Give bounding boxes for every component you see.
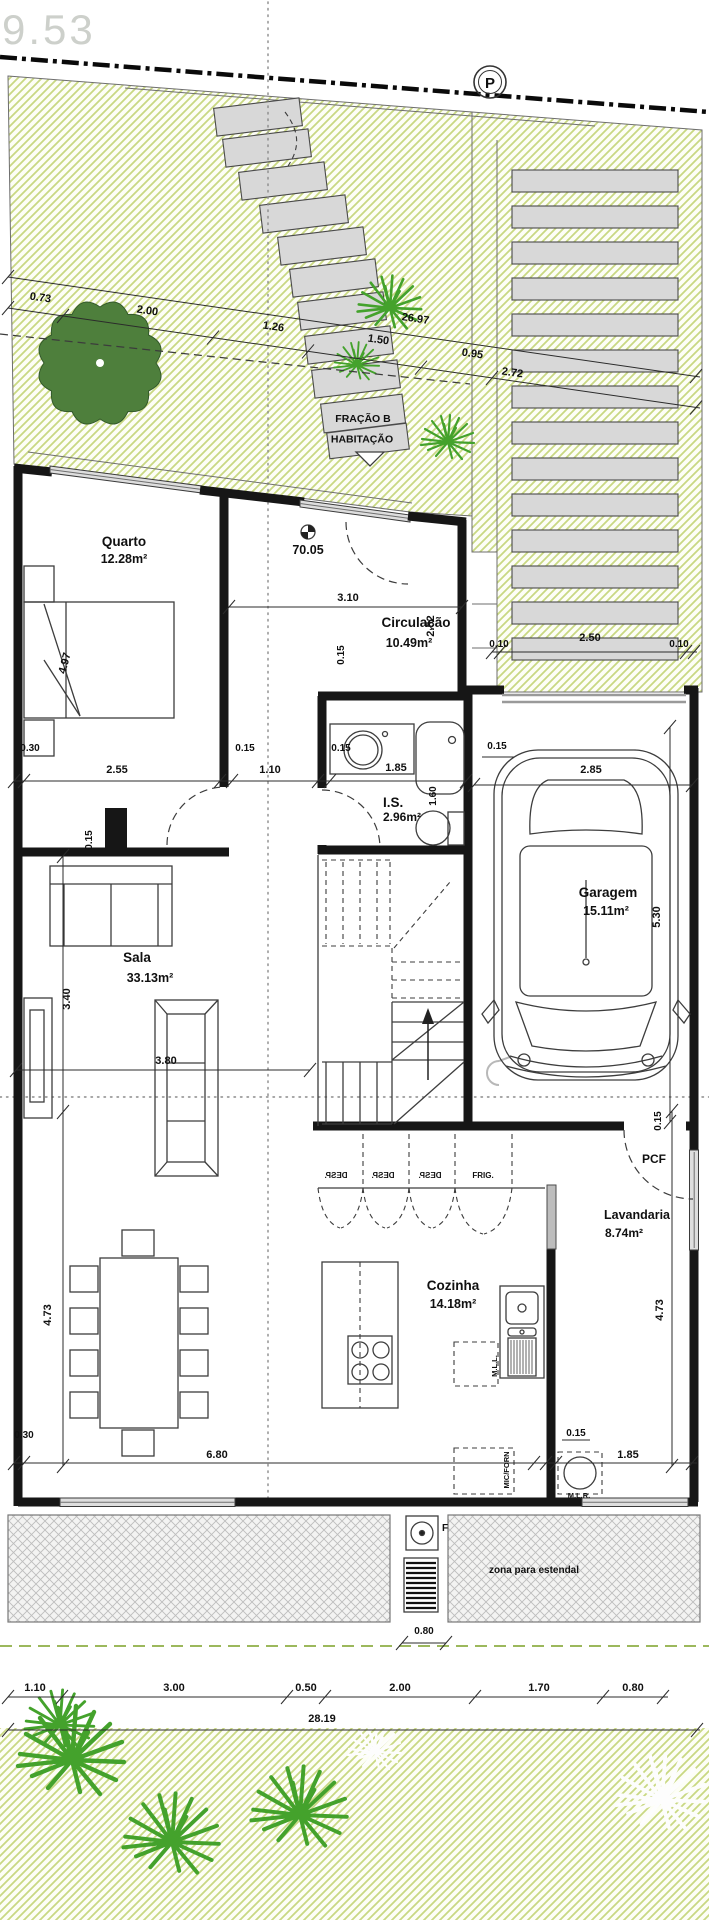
label-micforn: MIC/FORN xyxy=(502,1451,511,1488)
label-desp-1: DESP. xyxy=(325,1171,348,1180)
room-lavandaria-area: 8.74m² xyxy=(605,1226,643,1240)
chair xyxy=(70,1308,98,1334)
dim-015-garage: 0.15 xyxy=(487,741,507,752)
garden-hatch-lower xyxy=(0,1728,709,1920)
car-mirror-right xyxy=(673,1000,690,1023)
room-garagem: Garagem xyxy=(579,885,638,900)
kitchen-island xyxy=(322,1262,398,1408)
washing-machine xyxy=(564,1457,596,1489)
fraction-label: FRAÇÃO B xyxy=(335,412,391,425)
elevation-label: 9.53 xyxy=(2,6,96,53)
label-mlr: M.L.R. xyxy=(568,1491,591,1500)
room-sala-area: 33.13m² xyxy=(127,971,174,985)
dim-473-right: 4.73 xyxy=(654,1299,666,1320)
chair xyxy=(180,1392,208,1418)
dim-185b: 1.85 xyxy=(617,1449,638,1461)
dim-252: 2.52 xyxy=(425,615,437,636)
label-desp-3: DESP. xyxy=(419,1171,442,1180)
room-is: I.S. xyxy=(383,795,403,810)
dim-b110: 1.10 xyxy=(24,1682,45,1694)
garage-door xyxy=(502,695,686,702)
tree-trunk-dot xyxy=(96,359,104,367)
bathroom-fixtures xyxy=(330,722,464,845)
stair-up-arrow xyxy=(422,1008,434,1024)
dim-255: 2.55 xyxy=(106,764,127,776)
house-interior-walls xyxy=(18,496,558,1502)
chair xyxy=(122,1230,154,1256)
coffee-table xyxy=(155,1000,218,1176)
dim-310: 3.10 xyxy=(337,592,358,604)
parking-symbol: P xyxy=(474,66,506,98)
laundry-fixtures xyxy=(558,1452,602,1494)
dim-030: 0.30 xyxy=(20,743,40,754)
dim-380: 3.80 xyxy=(155,1055,176,1067)
nightstand xyxy=(24,566,54,602)
room-quarto-area: 12.28m² xyxy=(101,552,148,566)
dining-table xyxy=(100,1258,178,1428)
dim-ramp-010a: 0.10 xyxy=(489,639,509,650)
room-quarto: Quarto xyxy=(102,534,146,549)
bedroom-furniture xyxy=(24,566,174,756)
entrance-door-arc xyxy=(346,522,408,584)
bedroom-door-arc xyxy=(167,787,225,845)
floorplan-sheet: FRAÇÃO B HABITAÇÃO xyxy=(0,0,709,1920)
dim-015-sala: 0.15 xyxy=(84,830,95,850)
living-room-furniture xyxy=(24,866,218,1176)
room-sala: Sala xyxy=(123,950,151,965)
dim-473-left: 4.73 xyxy=(42,1304,54,1325)
dim-total-2819: 28.19 xyxy=(308,1713,336,1725)
laundry-door-leaf xyxy=(547,1185,556,1249)
dim-185: 1.85 xyxy=(385,762,406,774)
dim-340: 3.40 xyxy=(61,988,73,1009)
label-f: F xyxy=(442,1523,448,1534)
bathroom-door-arc xyxy=(322,790,380,848)
staircase xyxy=(318,855,464,1126)
room-cozinha: Cozinha xyxy=(427,1278,480,1293)
label-frig: FRIG. xyxy=(472,1171,493,1180)
room-is-area: 2.96m² xyxy=(383,810,421,824)
dim-530: 5.30 xyxy=(651,906,663,927)
chair xyxy=(70,1266,98,1292)
room-garagem-area: 15.11m² xyxy=(583,904,629,918)
kitchen-cabinets xyxy=(318,1134,545,1234)
label-mll: M.L.L. xyxy=(490,1355,499,1377)
shower xyxy=(416,722,464,794)
dim-497: 4.97 xyxy=(57,651,74,675)
dim-015b: 0.15 xyxy=(331,743,351,754)
dim-015f: 0.15 xyxy=(566,1428,586,1439)
chair xyxy=(70,1392,98,1418)
room-cozinha-area: 14.18m² xyxy=(430,1297,477,1311)
car-mirror-left xyxy=(482,1000,499,1023)
dim-080-patio: 0.80 xyxy=(414,1626,434,1637)
section-cut-symbol xyxy=(487,1057,510,1085)
dim-b200: 2.00 xyxy=(389,1682,410,1694)
dim-b050: 0.50 xyxy=(295,1682,316,1694)
chair xyxy=(70,1350,98,1376)
svg-text:P: P xyxy=(485,75,495,92)
dim-b300: 3.00 xyxy=(163,1682,184,1694)
dim-015a: 0.15 xyxy=(235,743,255,754)
patio-grate xyxy=(404,1558,438,1612)
label-pcf: PCF xyxy=(642,1152,666,1166)
label-estendal: zona para estendal xyxy=(489,1565,579,1576)
patio-drain-symbol xyxy=(406,1516,438,1550)
habitation-label: HABITAÇÃO xyxy=(331,433,393,446)
dining-set xyxy=(70,1230,208,1456)
room-circulacao: Circulação xyxy=(381,615,450,630)
chair xyxy=(180,1266,208,1292)
dim-ramp-010b: 0.10 xyxy=(669,639,689,650)
dim-b170: 1.70 xyxy=(528,1682,549,1694)
dim-030b: 0.30 xyxy=(14,1430,34,1441)
car-windshield xyxy=(516,1002,656,1051)
tv-sideboard xyxy=(24,998,52,1118)
toilet-bowl xyxy=(416,811,450,845)
level-marker xyxy=(301,525,315,539)
chair xyxy=(180,1350,208,1376)
dim-015-is-wall: 0.15 xyxy=(336,645,347,665)
chair xyxy=(122,1430,154,1456)
car-rear-window xyxy=(530,780,642,834)
room-lavandaria: Lavandaria xyxy=(604,1208,671,1222)
dim-b080: 0.80 xyxy=(622,1682,643,1694)
room-circulacao-area: 10.49m² xyxy=(386,636,433,650)
dim-ramp-250: 2.50 xyxy=(579,632,600,644)
floorplan-drawing: FRAÇÃO B HABITAÇÃO xyxy=(0,0,709,1920)
bed xyxy=(24,602,174,718)
dim-015-lav: 0.15 xyxy=(653,1111,664,1131)
driveway-ramp xyxy=(497,140,678,660)
dim-680: 6.80 xyxy=(206,1449,227,1461)
dim-160: 1.60 xyxy=(428,786,439,806)
dim-285: 2.85 xyxy=(580,764,601,776)
chair xyxy=(180,1308,208,1334)
label-desp-2: DESP. xyxy=(372,1171,395,1180)
dim-110: 1.10 xyxy=(259,764,280,776)
level-value: 70.05 xyxy=(292,543,323,557)
wall-stub xyxy=(105,808,127,852)
sink-bowl xyxy=(506,1292,538,1324)
patio-left xyxy=(8,1515,390,1622)
